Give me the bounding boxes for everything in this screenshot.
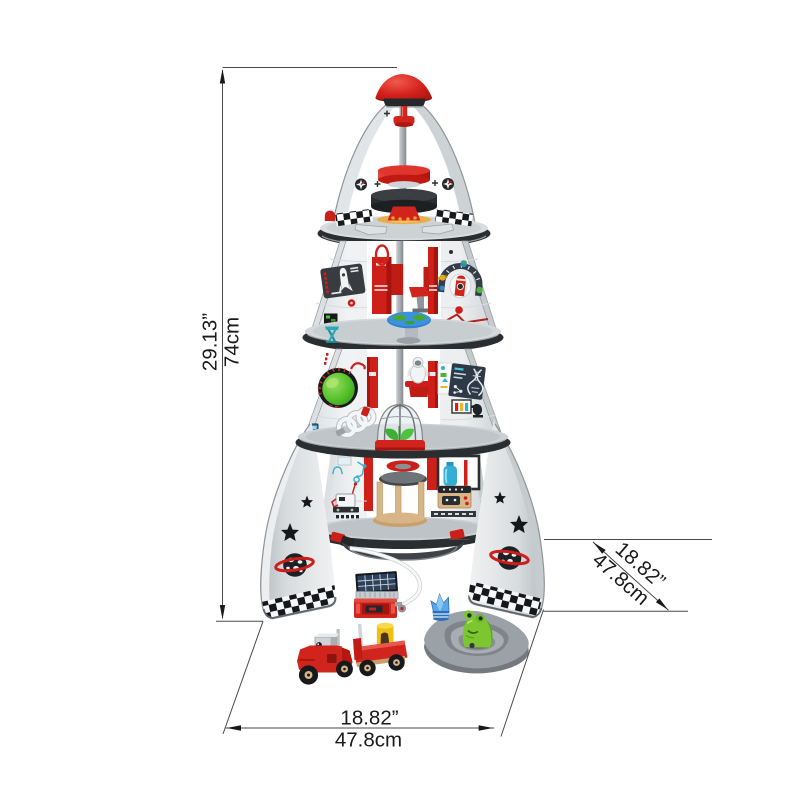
- svg-text:47.8cm: 47.8cm: [335, 729, 402, 752]
- svg-text:29.13”: 29.13”: [198, 313, 221, 371]
- svg-text:74cm: 74cm: [220, 317, 243, 367]
- svg-text:18.82”: 18.82”: [340, 707, 398, 730]
